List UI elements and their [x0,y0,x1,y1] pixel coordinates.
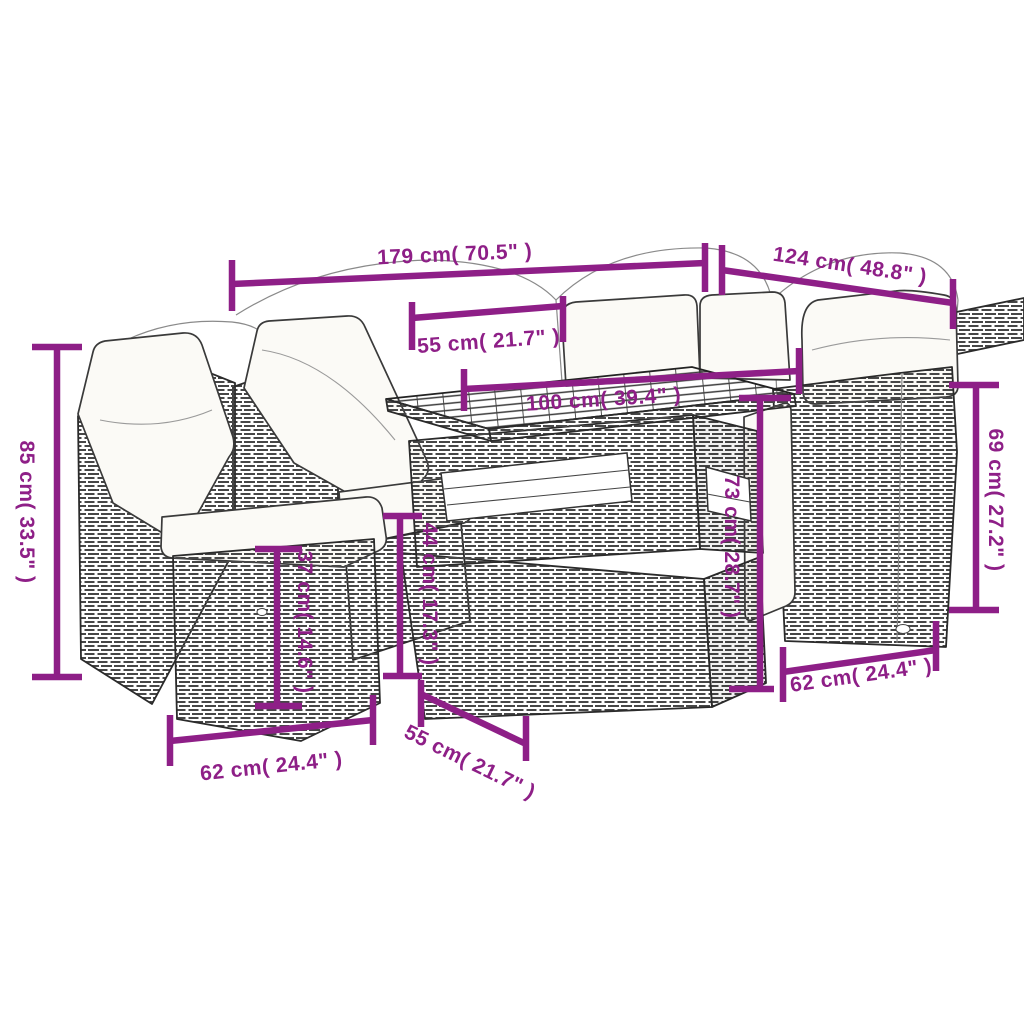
dimension-line [412,306,563,318]
dimension-label: 73 cm( 28.7" ) [720,475,743,618]
dimension-label: 69 cm( 27.2" ) [984,428,1007,571]
right-section-side-panel [773,367,957,647]
furniture-dimension-diagram: 179 cm( 70.5" ) 124 cm( 48.8" ) 55 cm( 2… [0,0,1024,1024]
dimension-label: 55 cm( 21.7" ) [416,325,560,358]
dimension-line [232,263,705,284]
dimension-side-height: 69 cm( 27.2" ) [949,385,1007,610]
dimension-label: 179 cm( 70.5" ) [377,240,533,270]
dimension-label: 37 cm( 14.6" ) [293,550,316,693]
brand-tag [257,609,267,616]
sofa-back-cushion [700,292,790,380]
dimension-back-height: 85 cm( 33.5" ) [15,347,82,677]
diagram-canvas: 179 cm( 70.5" ) 124 cm( 48.8" ) 55 cm( 2… [0,0,1024,1024]
dimension-label: 55 cm( 21.7" ) [401,720,540,803]
dimension-label: 62 cm( 24.4" ) [199,748,344,786]
dimension-seat-width-top: 55 cm( 21.7" ) [412,296,563,358]
dimension-label: 85 cm( 33.5" ) [15,440,38,583]
brand-tag [896,625,910,634]
dimension-label: 44 cm( 17.3" ) [418,522,441,665]
table-base-front [401,553,712,719]
